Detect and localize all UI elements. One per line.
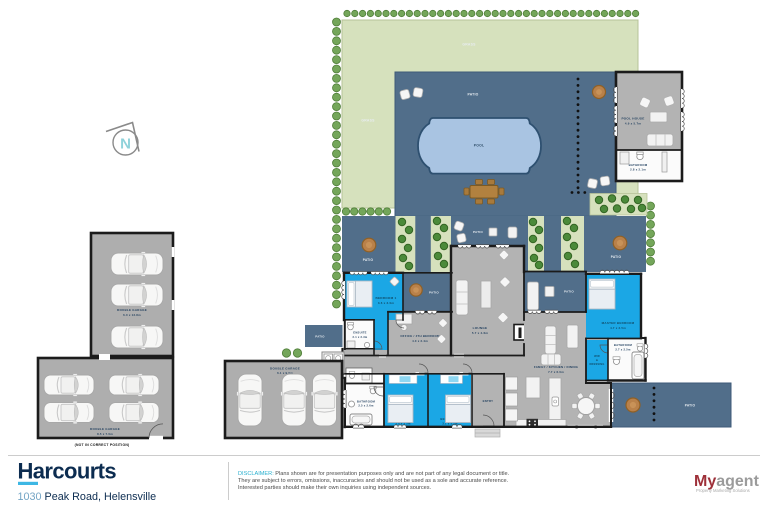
- svg-text:ENTRY: ENTRY: [483, 399, 494, 403]
- svg-text:Harcourts: Harcourts: [18, 459, 117, 484]
- svg-text:2.5 x 2.6m: 2.5 x 2.6m: [358, 404, 374, 408]
- svg-text:2.8 x 2.1m: 2.8 x 2.1m: [630, 168, 646, 172]
- svg-text:POOL HOUSE: POOL HOUSE: [621, 117, 644, 121]
- svg-text:OFFICE / 4TH BEDROOM: OFFICE / 4TH BEDROOM: [400, 334, 440, 338]
- svg-text:PATIO: PATIO: [429, 291, 439, 295]
- svg-text:BATHROOM: BATHROOM: [629, 163, 648, 167]
- svg-text:N: N: [120, 136, 131, 153]
- svg-text:PATIO: PATIO: [685, 404, 696, 408]
- svg-text:They are subject to errors, om: They are subject to errors, omissions, i…: [238, 478, 509, 484]
- svg-text:DOUBLE GARAGE: DOUBLE GARAGE: [117, 308, 147, 312]
- svg-text:6.0 x 12.8m: 6.0 x 12.8m: [123, 313, 141, 317]
- svg-text:BEDROOM 1: BEDROOM 1: [376, 296, 397, 300]
- svg-text:&: &: [596, 358, 598, 362]
- svg-text:BATHROOM: BATHROOM: [357, 400, 376, 404]
- svg-text:PATIO: PATIO: [564, 290, 574, 294]
- svg-text:DISCLAIMER: Plans shown are fo: DISCLAIMER: Plans shown are for presenta…: [238, 471, 510, 477]
- svg-text:GRASS: GRASS: [361, 119, 375, 123]
- svg-text:PATIO: PATIO: [611, 255, 622, 259]
- svg-text:8.5 x 7.0m: 8.5 x 7.0m: [97, 432, 113, 436]
- svg-text:DOUBLE GARAGE: DOUBLE GARAGE: [90, 427, 120, 431]
- svg-text:4.7 x 3.5m: 4.7 x 3.5m: [610, 326, 626, 330]
- svg-text:4.9 x 5.7m: 4.9 x 5.7m: [625, 121, 642, 125]
- svg-text:POOL: POOL: [474, 144, 485, 148]
- svg-text:PATIO: PATIO: [315, 335, 325, 339]
- svg-text:Interested parties should make: Interested parties should make their own…: [238, 485, 432, 491]
- svg-text:2.1 x 2.3m: 2.1 x 2.3m: [353, 335, 368, 339]
- svg-text:BATHROOM: BATHROOM: [614, 343, 633, 347]
- svg-text:LOUNGE: LOUNGE: [473, 326, 488, 330]
- svg-text:MASTER BEDROOM: MASTER BEDROOM: [602, 321, 635, 325]
- svg-text:PATIO: PATIO: [473, 230, 483, 234]
- svg-text:DRESSING: DRESSING: [589, 363, 604, 366]
- svg-text:WIR: WIR: [594, 354, 600, 358]
- svg-text:Property Marketing Solutions: Property Marketing Solutions: [696, 488, 750, 493]
- svg-text:7.7 x 6.0m: 7.7 x 6.0m: [548, 370, 564, 374]
- svg-text:3.6 x 3.0m: 3.6 x 3.0m: [378, 301, 395, 305]
- svg-text:PATIO: PATIO: [363, 258, 374, 262]
- svg-text:FAMILY / KITCHEN / DINING: FAMILY / KITCHEN / DINING: [534, 365, 579, 369]
- svg-text:PATIO: PATIO: [467, 93, 478, 97]
- svg-text:2.7 x 2.5m: 2.7 x 2.5m: [615, 348, 631, 352]
- svg-text:1030 Peak Road, Helensville: 1030 Peak Road, Helensville: [18, 491, 157, 503]
- svg-text:DOUBLE GARAGE: DOUBLE GARAGE: [270, 367, 300, 371]
- svg-text:5.7 x 4.6m: 5.7 x 4.6m: [472, 331, 489, 335]
- svg-text:4.0 x 2.4m: 4.0 x 2.4m: [412, 339, 428, 343]
- svg-text:ENSUITE: ENSUITE: [353, 331, 366, 335]
- svg-text:GRASS: GRASS: [462, 43, 476, 47]
- svg-text:(NOT IN CORRECT POSITION): (NOT IN CORRECT POSITION): [75, 443, 130, 447]
